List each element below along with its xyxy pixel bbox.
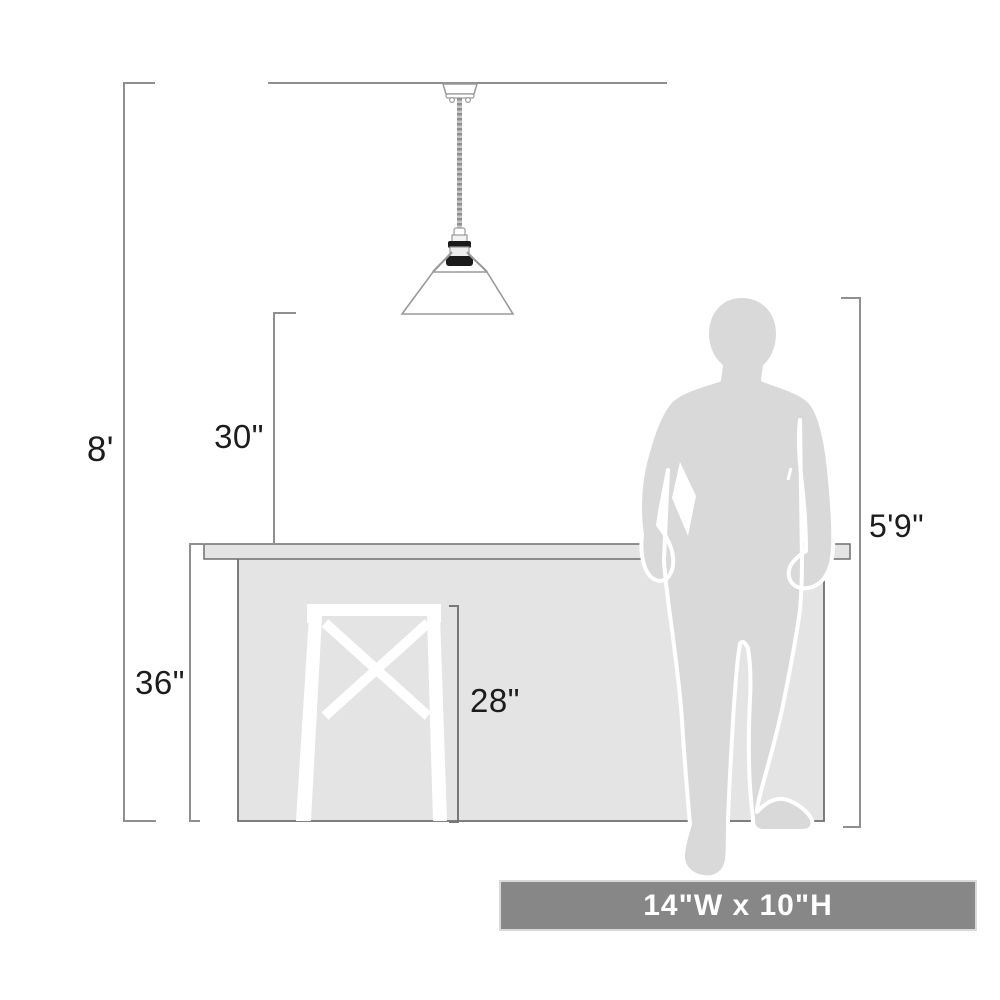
pendant-canopy-plate (446, 94, 474, 98)
stool-seat-lip (429, 615, 441, 623)
socket-neck (452, 235, 467, 242)
label-stool-height: 28" (470, 681, 550, 721)
dimension-line-counter-height (190, 544, 203, 821)
canopy-screw (450, 98, 455, 103)
pendant-shade (402, 272, 513, 314)
shade-size-text: 14"W x 10"H (643, 889, 833, 923)
label-counter-height: 36" (130, 663, 190, 703)
pendant-light (402, 84, 513, 314)
stool-seat-lip (307, 615, 319, 623)
label-light-to-counter: 30" (198, 417, 264, 457)
label-ceiling-height: 8' (70, 430, 114, 470)
stool-seat (307, 604, 441, 616)
pendant-canopy (443, 84, 477, 94)
size-diagram: 8' 30" 36" 28" 5'9" 14"W x 10"H (0, 0, 1000, 1000)
label-person-height: 5'9" (869, 506, 959, 546)
canopy-screw (466, 98, 471, 103)
dimension-line-ceiling-height (124, 83, 156, 821)
socket-base (446, 256, 473, 266)
shade-size-banner: 14"W x 10"H (499, 880, 977, 931)
diagram-canvas (0, 0, 1000, 1000)
socket-body (450, 247, 469, 257)
dimension-line-person-height (841, 298, 860, 827)
dimension-line-light-to-counter (274, 313, 296, 543)
